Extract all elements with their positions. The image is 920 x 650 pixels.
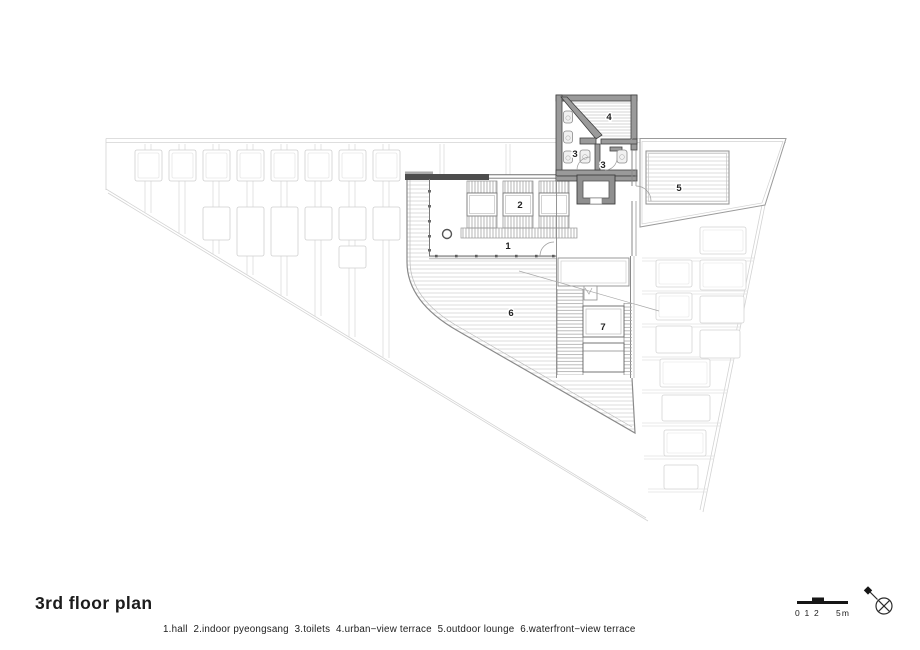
page-title: 3rd floor plan	[35, 593, 152, 614]
room-label-toilet-left: 3	[572, 149, 577, 160]
room-label-toilet-right: 3	[600, 160, 605, 171]
room-label-urban-view-terrace: 4	[606, 112, 612, 123]
elevator-shaft	[577, 175, 615, 204]
toilets-block	[556, 95, 637, 181]
floor-plan-page: 12334567 0 1 2 5m 3rd floor plan 1.hall …	[0, 0, 920, 650]
scale-tick-labels: 0 1 2	[795, 608, 820, 618]
room-label-ondol-pyeongsang: 7	[600, 322, 605, 333]
scale-bar: 0 1 2 5m	[795, 598, 850, 619]
room-label-outdoor-lounge: 5	[676, 183, 682, 194]
legend-line-1: 1.hall 2.indoor pyeongsang 3.toilets 4.u…	[163, 623, 635, 636]
floor-plan-canvas: 12334567 0 1 2 5m	[0, 0, 920, 650]
legend: 1.hall 2.indoor pyeongsang 3.toilets 4.u…	[163, 597, 635, 650]
room-outdoor-lounge	[640, 139, 786, 228]
stair-ondol-block	[557, 257, 632, 378]
room-label-indoor-pyeongsang: 2	[517, 200, 522, 211]
scale-max-label: 5m	[836, 608, 850, 618]
room-label-waterfront-view-terrace: 6	[508, 308, 513, 319]
column-symbol	[443, 230, 452, 239]
north-indicator-icon	[864, 586, 892, 614]
room-label-hall: 1	[505, 241, 511, 252]
